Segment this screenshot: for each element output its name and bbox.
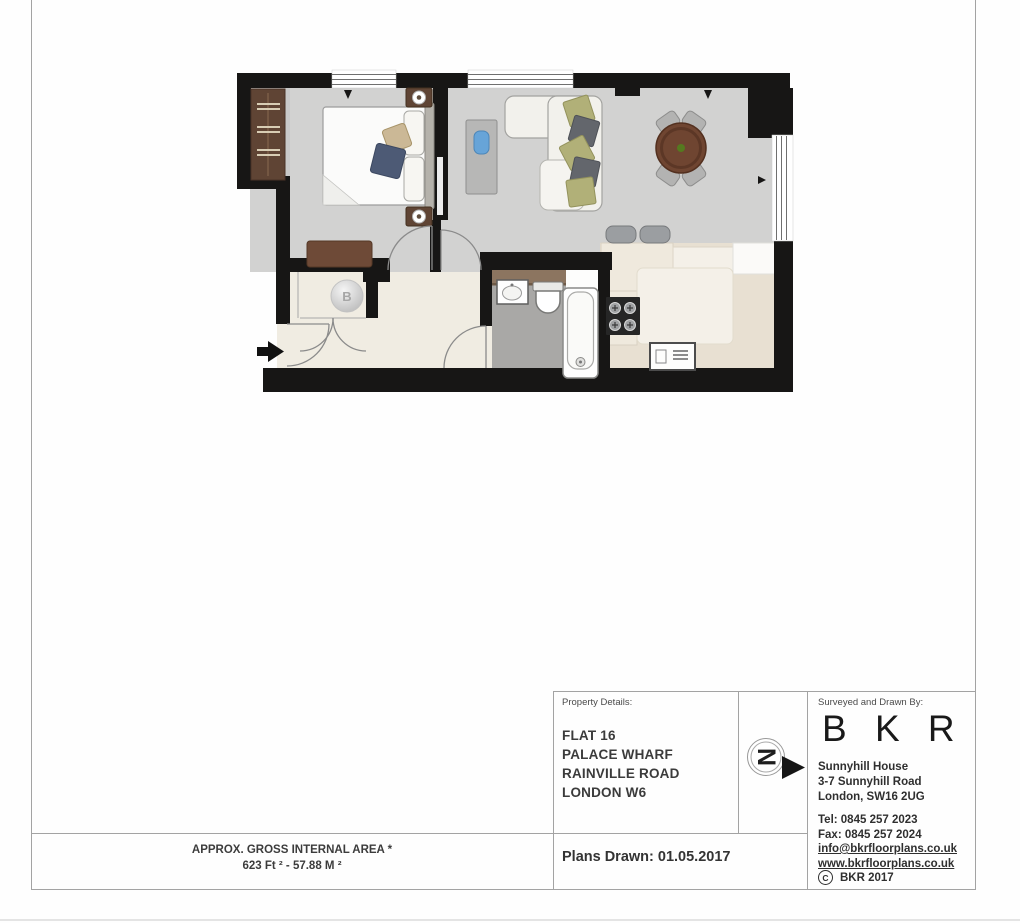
surveyor-logo: B K R	[822, 708, 964, 750]
surveyor-address-line: London, SW16 2UG	[818, 790, 925, 805]
scan-edge	[0, 919, 1020, 921]
footer-divider	[31, 833, 808, 834]
living-window	[468, 70, 573, 88]
compass-arrow-icon	[782, 756, 805, 779]
wall-cupboard-right	[366, 282, 378, 318]
wall-top-bump	[615, 88, 640, 96]
page-frame-bottom	[31, 889, 976, 890]
copyright-symbol-icon: C	[818, 870, 833, 885]
compass-north-letter: N	[752, 748, 780, 766]
north-compass-icon: N	[738, 735, 808, 787]
surveyor-email: info@bkrfloorplans.co.uk	[818, 842, 957, 857]
tv-unit	[466, 120, 497, 194]
tv	[474, 131, 489, 154]
wall-right-corner-block	[748, 88, 774, 138]
page-frame-left	[31, 0, 32, 890]
wall-bottom	[263, 368, 793, 392]
surveyor-tel: Tel: 0845 257 2023	[818, 813, 922, 828]
bedside-table-bottom	[406, 207, 432, 226]
bathtub	[563, 288, 598, 378]
divider-door-recess	[437, 157, 443, 215]
info-box-divider-2	[807, 691, 808, 889]
dresser	[307, 241, 372, 267]
surveyor-phones: Tel: 0845 257 2023 Fax: 0845 257 2024	[818, 813, 922, 843]
surveyor-address: Sunnyhill House 3-7 Sunnyhill Road Londo…	[818, 760, 925, 805]
floorplan-page: B	[0, 0, 1020, 923]
wall-cupboard-top	[363, 272, 390, 282]
right-window	[772, 135, 793, 241]
table-plant	[677, 144, 685, 152]
gross-internal-area: APPROX. GROSS INTERNAL AREA * 623 Ft ² -…	[31, 842, 553, 874]
oven-appliance	[650, 343, 695, 370]
property-address: FLAT 16 PALACE WHARF RAINVILLE ROAD LOND…	[562, 726, 680, 802]
pillow	[404, 157, 424, 201]
property-address-line: PALACE WHARF	[562, 745, 680, 764]
tall-unit	[733, 243, 775, 274]
bar-stool	[606, 226, 636, 243]
washbasin	[497, 280, 528, 304]
double-bed	[323, 103, 434, 209]
bar-stool	[640, 226, 670, 243]
surveyed-by-label: Surveyed and Drawn By:	[818, 697, 923, 708]
surveyor-links: info@bkrfloorplans.co.uk www.bkrfloorpla…	[818, 842, 957, 872]
wall-bathroom-top	[480, 252, 612, 270]
wall-nook-left	[237, 73, 251, 189]
bedside-table-top	[406, 88, 432, 107]
kitchen-island-worktop	[637, 268, 733, 344]
sofa-cushion	[566, 177, 596, 207]
wall-left	[276, 176, 290, 324]
info-box-top	[553, 691, 976, 692]
wardrobe	[251, 89, 285, 180]
property-address-line: LONDON W6	[562, 783, 680, 802]
surveyor-address-line: 3-7 Sunnyhill Road	[818, 775, 925, 790]
copyright: C BKR 2017	[818, 870, 894, 885]
property-address-line: RAINVILLE ROAD	[562, 764, 680, 783]
surveyor-address-line: Sunnyhill House	[818, 760, 925, 775]
property-address-line: FLAT 16	[562, 726, 680, 745]
copyright-text: BKR 2017	[840, 872, 894, 884]
area-values: 623 Ft ² - 57.88 M ²	[31, 858, 553, 874]
page-frame-right	[975, 0, 976, 890]
hallway-floor	[277, 272, 492, 368]
area-title: APPROX. GROSS INTERNAL AREA *	[31, 842, 553, 858]
property-details-label: Property Details:	[562, 697, 632, 708]
bedroom-window	[332, 70, 396, 88]
hob	[606, 297, 640, 335]
headboard	[425, 103, 434, 209]
wall-bathroom-left	[480, 270, 492, 326]
boiler-label: B	[342, 289, 351, 304]
info-box-left	[553, 691, 554, 889]
surveyor-fax: Fax: 0845 257 2024	[818, 828, 922, 843]
plans-drawn-date: Plans Drawn: 01.05.2017	[562, 849, 730, 865]
blue-cushion	[370, 143, 406, 179]
